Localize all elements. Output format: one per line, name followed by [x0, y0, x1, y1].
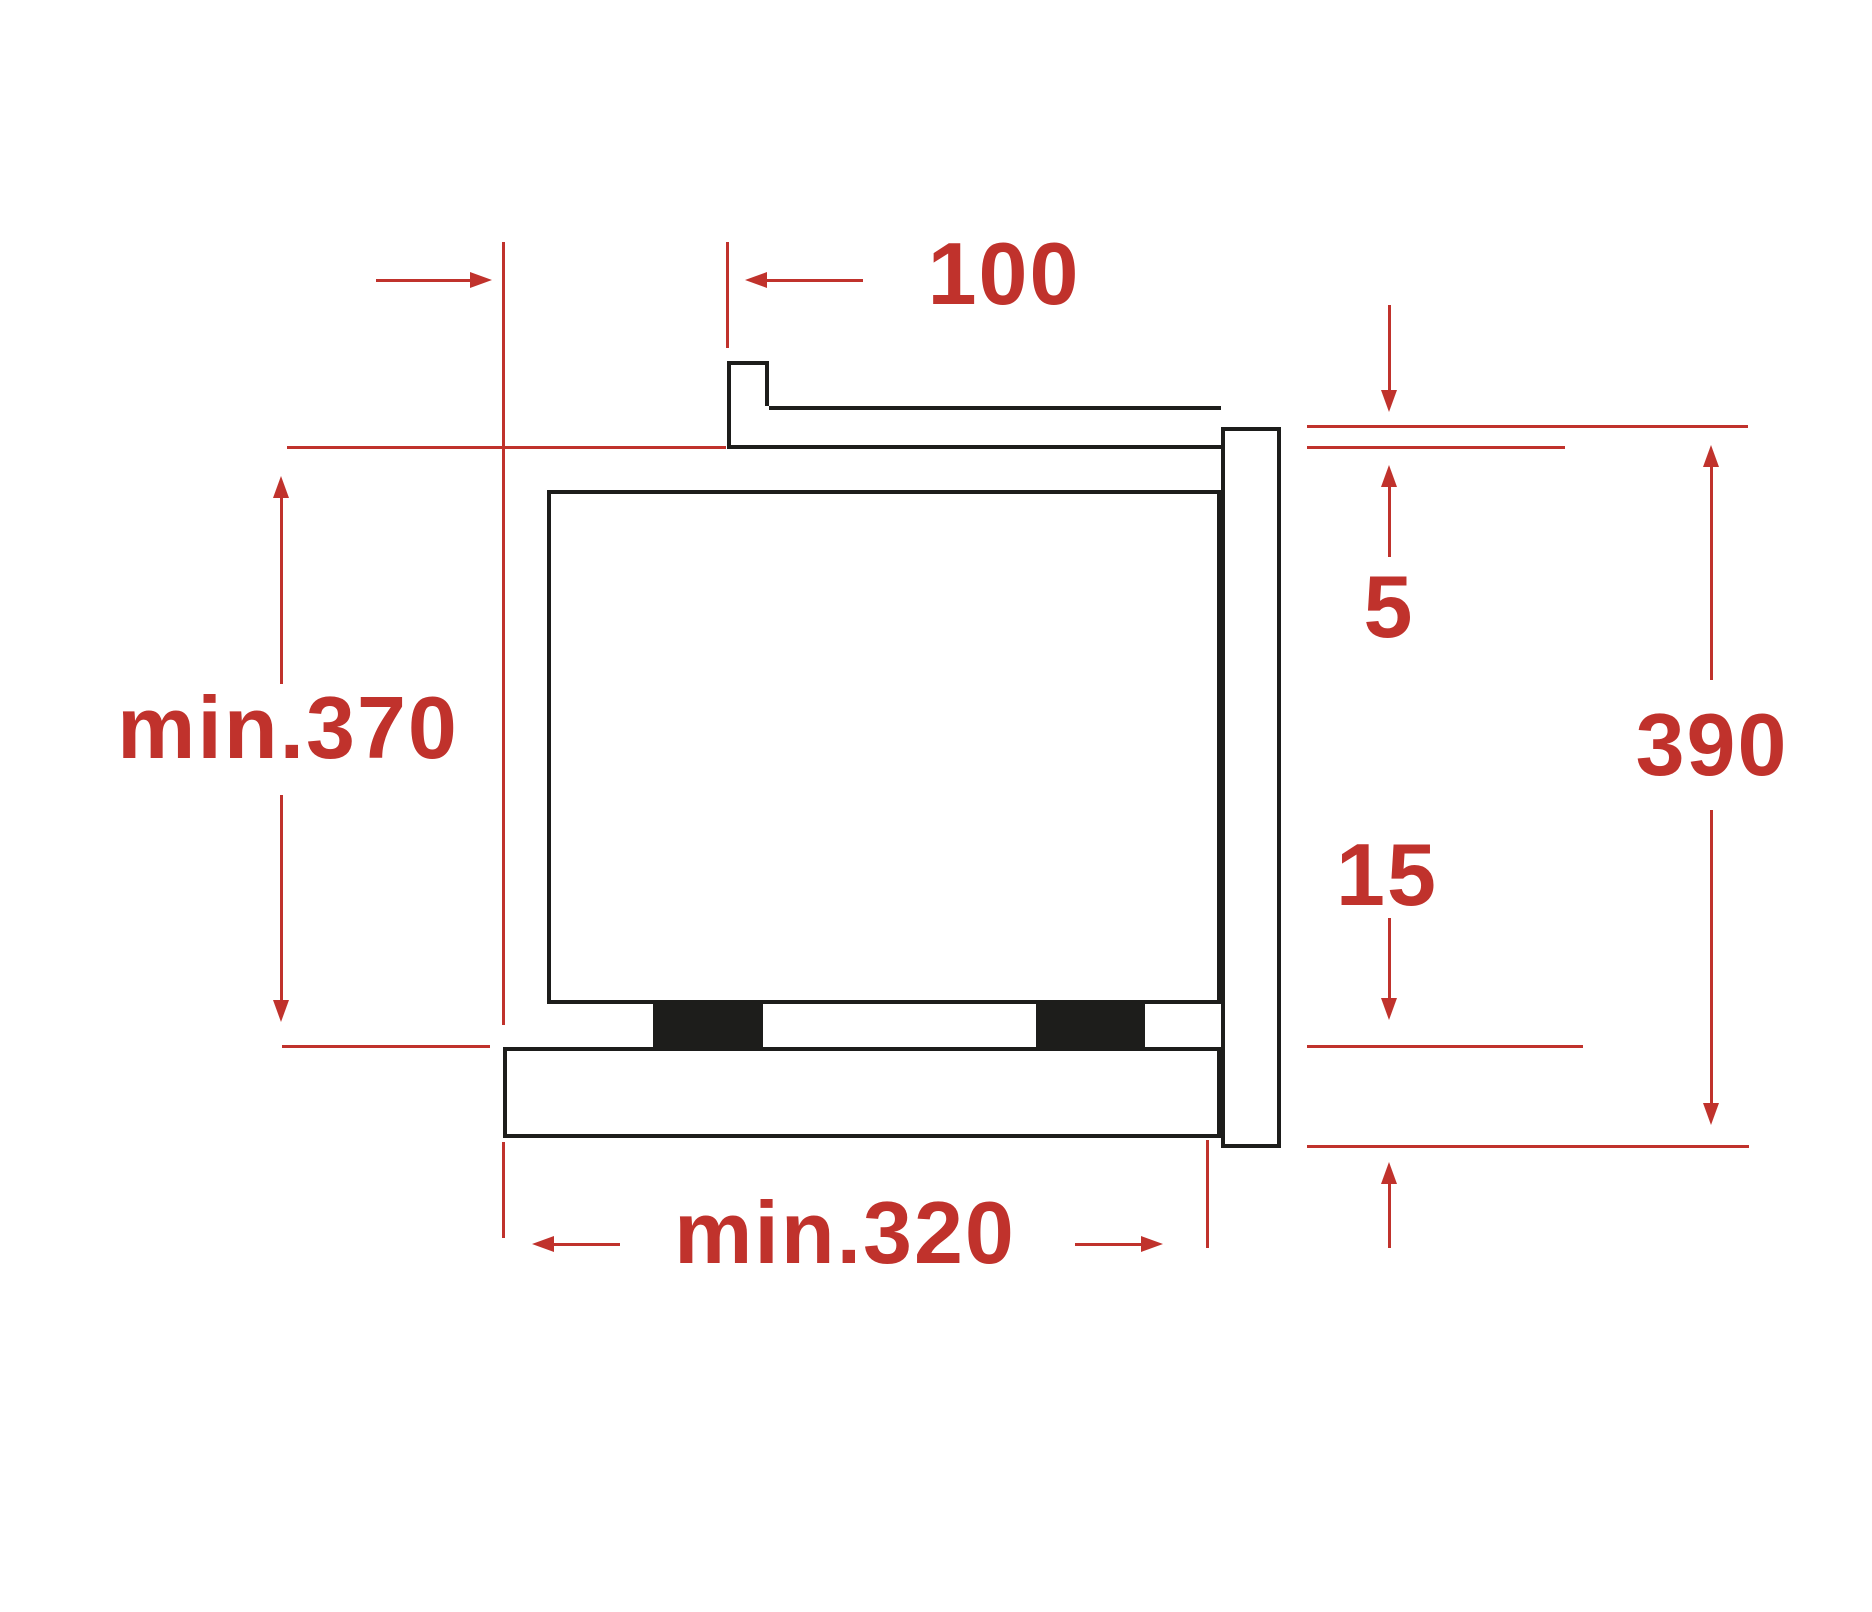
foot-right	[1036, 1004, 1145, 1047]
dim-5-shaft-bottom	[1388, 485, 1391, 557]
arrow-down-icon	[1381, 998, 1397, 1020]
trim-ledge-bottom-edge	[727, 445, 1221, 449]
datum-frame-top-right	[1307, 425, 1748, 428]
dim-100-shaft-left	[376, 279, 472, 282]
arrow-right-icon	[470, 272, 492, 288]
dim-5-shaft-top	[1388, 305, 1391, 392]
datum-niche-top-right	[1307, 446, 1565, 449]
datum-niche-top-left	[287, 446, 726, 449]
arrow-up-icon	[1381, 465, 1397, 487]
vent-tab-right-edge	[765, 361, 769, 406]
trim-ledge-top-edge	[769, 406, 1221, 410]
dim-370-label: min.370	[117, 684, 459, 772]
arrow-down-icon	[1381, 390, 1397, 412]
arrow-up-icon	[1703, 445, 1719, 467]
oven-body-outline	[547, 490, 1221, 1004]
arrow-right-icon	[1141, 1236, 1163, 1252]
arrow-up-icon	[273, 476, 289, 498]
dim-15-shaft-bottom	[1388, 1183, 1391, 1248]
foot-left	[653, 1004, 763, 1047]
dim-390-shaft-top	[1710, 465, 1713, 680]
arrow-down-icon	[1703, 1103, 1719, 1125]
datum-frame-bottom-right	[1307, 1145, 1749, 1148]
dim-100-label: 100	[928, 230, 1081, 318]
dim-15-label: 15	[1336, 831, 1438, 919]
vent-tab-top-edge	[727, 361, 769, 365]
dim-390-shaft-bottom	[1710, 810, 1713, 1105]
dim-370-shaft-bottom	[280, 795, 283, 1000]
arrow-left-icon	[532, 1236, 554, 1252]
extension-rear-wall-top	[502, 242, 505, 1025]
dim-100-shaft-right	[765, 279, 863, 282]
arrow-left-icon	[745, 272, 767, 288]
installation-diagram: 100 min.370 390 5 15 min.320	[0, 0, 1872, 1612]
extension-shelf-front	[1206, 1140, 1209, 1248]
datum-niche-bottom-left	[282, 1045, 490, 1048]
dim-320-shaft-left	[554, 1243, 620, 1246]
dim-5-label: 5	[1364, 563, 1415, 651]
front-frame-bar	[1221, 427, 1281, 1148]
dim-320-label: min.320	[674, 1189, 1016, 1277]
datum-niche-bottom-right	[1307, 1045, 1583, 1048]
dim-390-label: 390	[1636, 701, 1789, 789]
bottom-shelf	[503, 1047, 1221, 1138]
arrow-down-icon	[273, 1000, 289, 1022]
dim-370-shaft-top	[280, 496, 283, 684]
dim-15-shaft-top	[1388, 918, 1391, 998]
extension-rear-wall-bottom	[502, 1142, 505, 1238]
extension-vent-tab	[726, 242, 729, 348]
arrow-up-icon	[1381, 1162, 1397, 1184]
vent-tab-left-edge	[727, 361, 731, 448]
dim-320-shaft-right	[1075, 1243, 1143, 1246]
